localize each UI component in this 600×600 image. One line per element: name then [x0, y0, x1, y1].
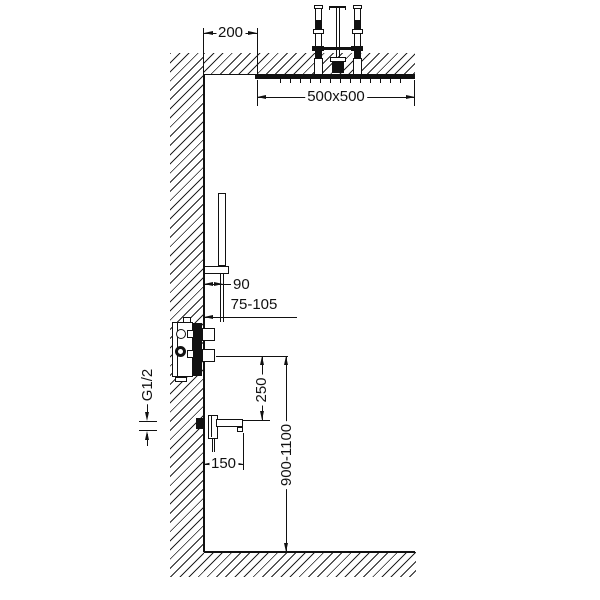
- ceiling-hatch: [204, 53, 415, 75]
- valve-port-lower: [175, 346, 186, 357]
- supply-pipe-right-line: [339, 8, 340, 58]
- hand-shower-handle: [218, 193, 226, 266]
- arrow-right-icon: [248, 31, 257, 35]
- dim-tick: [223, 280, 224, 289]
- dim-label-hand-shower-offset: 90: [231, 277, 252, 293]
- mounting-rod-right: [351, 5, 363, 75]
- wall-face-line: [203, 75, 205, 552]
- rod-thread-band-lower: [315, 51, 321, 58]
- supply-pipe-tee: [329, 6, 346, 8]
- arrow-down-icon: [145, 412, 149, 421]
- dim-label-connection-thread: G1/2: [140, 366, 156, 405]
- ext-valve-level: [216, 356, 288, 357]
- ext-g12-upper: [139, 421, 157, 422]
- arrow-left-icon: [257, 95, 266, 99]
- valve-bottom-stub: [175, 377, 187, 382]
- dim-label-valve-height-range: 900-1100: [279, 421, 295, 489]
- dim-label-ceiling-offset: 200: [216, 25, 245, 41]
- arrow-up-icon: [260, 356, 264, 365]
- valve-handle-lower: [202, 349, 216, 363]
- rod-nut: [352, 29, 363, 34]
- valve-port-upper: [176, 329, 186, 339]
- rod-thread-band: [354, 20, 360, 29]
- spout-wall-connector: [196, 418, 204, 429]
- shower-head-nozzles: [280, 79, 401, 83]
- rod-thread-band-lower: [354, 51, 360, 58]
- ext-head-right: [414, 80, 415, 106]
- spout-pipe-right: [214, 439, 215, 453]
- rod-thread-band: [315, 20, 321, 29]
- wall-hatch: [170, 53, 204, 577]
- rod-foot: [353, 58, 362, 75]
- floor-line: [204, 551, 415, 553]
- dim-line-depth-range: [204, 317, 297, 318]
- arrow-left-icon: [204, 315, 213, 319]
- arrow-left-icon: [204, 31, 213, 35]
- arrow-down-icon: [260, 411, 264, 420]
- valve-wall-plate: [193, 323, 202, 376]
- ext-head-left-upper: [257, 28, 258, 74]
- dim-label-depth-range: 75-105: [229, 297, 280, 313]
- hand-shower-holder: [204, 266, 229, 274]
- technical-drawing-canvas: 200 500x500 90 75-105 G1/2 250 150 900-1…: [0, 0, 600, 600]
- supply-pipe-left-line: [336, 8, 337, 58]
- rod-nut: [313, 29, 324, 34]
- supply-pipe-tee-end-left: [329, 6, 330, 10]
- arrow-up-icon: [284, 356, 288, 365]
- mounting-rod-left: [312, 5, 324, 75]
- arrow-right-icon: [406, 95, 415, 99]
- dim-label-head-size: 500x500: [305, 89, 367, 105]
- arrow-down-icon: [284, 543, 288, 552]
- spout-body-inner-line: [211, 416, 212, 437]
- ceiling-line: [204, 74, 257, 76]
- arrow-left-icon: [204, 282, 213, 286]
- valve-top-notch: [183, 317, 191, 323]
- spout-pipe-left: [212, 439, 213, 453]
- supply-pipe-tee-end-right: [345, 6, 346, 10]
- dim-label-valve-to-spout: 250: [254, 374, 270, 405]
- valve-handle-upper: [202, 328, 216, 342]
- dim-label-spout-reach: 150: [209, 456, 238, 472]
- rod-foot: [314, 58, 323, 75]
- ext-head-left-lower: [257, 80, 258, 106]
- floor-hatch: [204, 552, 416, 577]
- connector-block: [332, 62, 344, 74]
- spout-outlet-tip: [237, 427, 243, 432]
- arrow-up-icon: [145, 431, 149, 440]
- ext-spout-level: [243, 420, 270, 421]
- ext-wall-face-top: [203, 28, 204, 75]
